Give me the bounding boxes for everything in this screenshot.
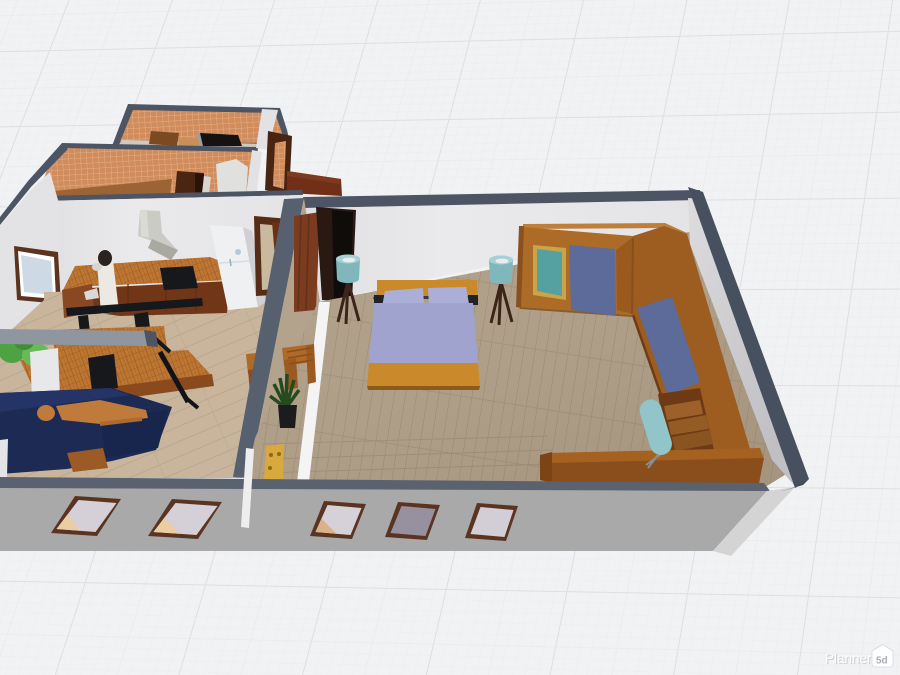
svg-text:5d: 5d bbox=[876, 656, 888, 667]
svg-text:Planner: Planner bbox=[825, 651, 872, 666]
